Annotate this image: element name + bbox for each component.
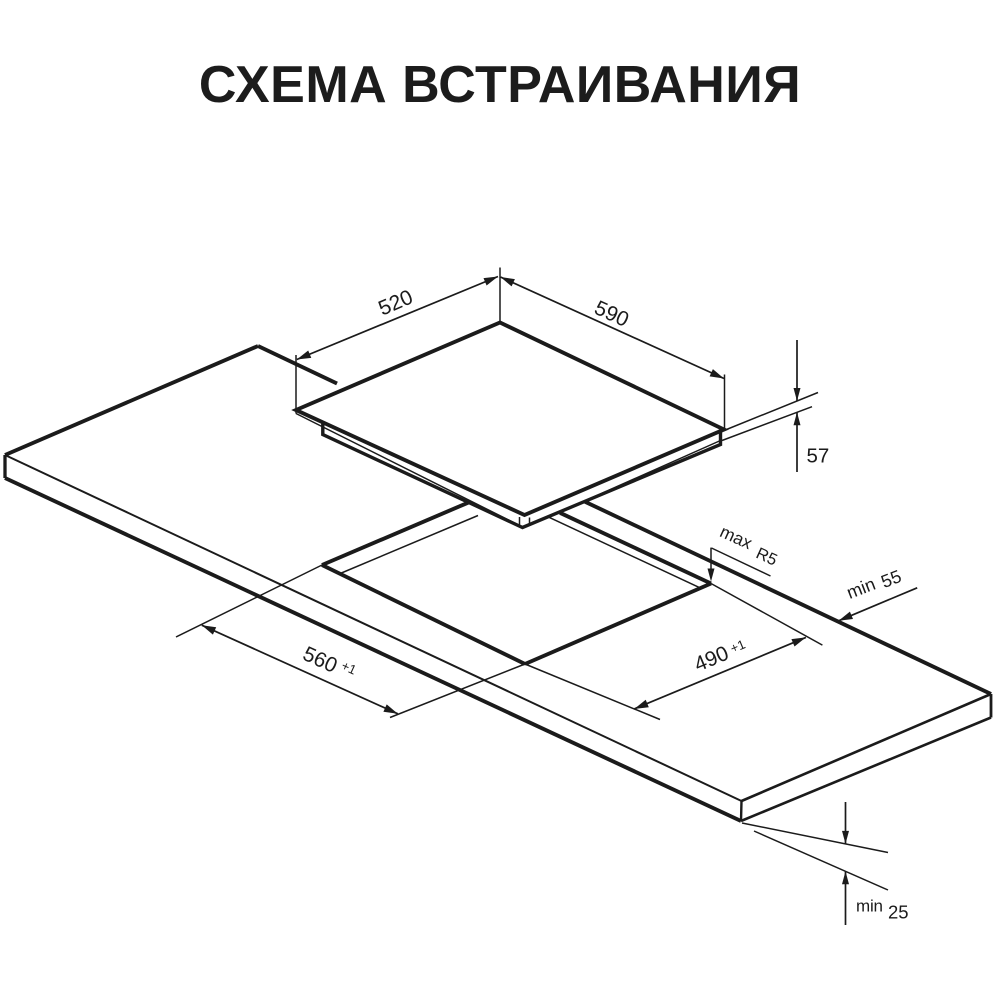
svg-text:25: 25	[888, 902, 909, 923]
svg-text:590: 590	[591, 296, 632, 331]
svg-text:min: min	[856, 897, 883, 916]
svg-text:57: 57	[807, 445, 830, 468]
svg-text:+1: +1	[728, 636, 747, 656]
svg-text:520: 520	[375, 286, 416, 321]
svg-text:+1: +1	[339, 658, 359, 678]
svg-text:R5: R5	[753, 544, 780, 569]
svg-text:min: min	[844, 574, 878, 603]
svg-text:max: max	[717, 521, 756, 553]
svg-text:55: 55	[878, 566, 904, 592]
